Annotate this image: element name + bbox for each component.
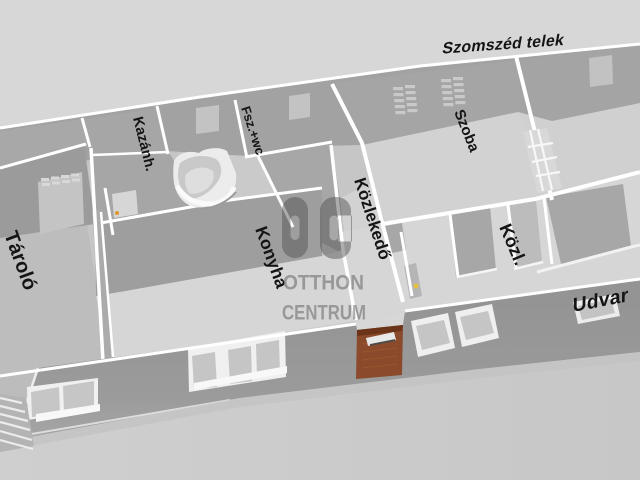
svg-text:OTTHON: OTTHON	[283, 272, 364, 295]
svg-text:CENTRUM: CENTRUM	[282, 302, 366, 325]
